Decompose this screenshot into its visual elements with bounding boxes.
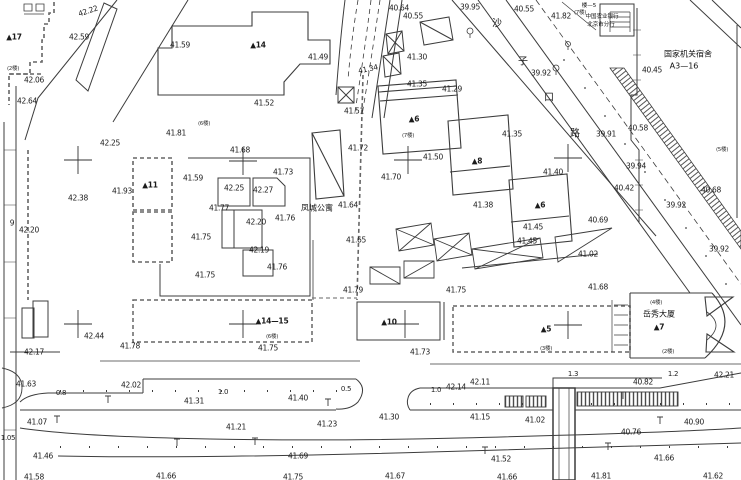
hatched-wall-band <box>610 68 741 249</box>
center-buildings <box>312 80 572 247</box>
map-symbol <box>24 4 44 14</box>
site-plan-canvas: 42.2242.5942.0642.6441.5941.4941.5241.51… <box>0 0 741 480</box>
apartment-complex <box>133 158 313 300</box>
braced-sheds <box>370 223 612 284</box>
left-road <box>2 86 60 480</box>
cad-linework <box>0 0 741 480</box>
stairs-symbol <box>610 12 630 32</box>
block-14-15-dashed <box>133 300 312 342</box>
building-11-dashed <box>133 158 172 262</box>
shazikou-road <box>452 0 741 325</box>
building-14-outline <box>158 12 330 95</box>
road-surface-dots <box>563 59 727 285</box>
block-10 <box>357 302 440 340</box>
block-5-dashed <box>453 306 630 352</box>
south-blocks <box>100 293 741 364</box>
underpass-structure <box>553 388 575 480</box>
tower-7-building <box>612 293 734 358</box>
survey-grid-crosses <box>64 144 582 339</box>
bank-building <box>562 2 634 36</box>
lower-road <box>20 428 741 457</box>
crosswalk-hatch <box>577 392 678 406</box>
